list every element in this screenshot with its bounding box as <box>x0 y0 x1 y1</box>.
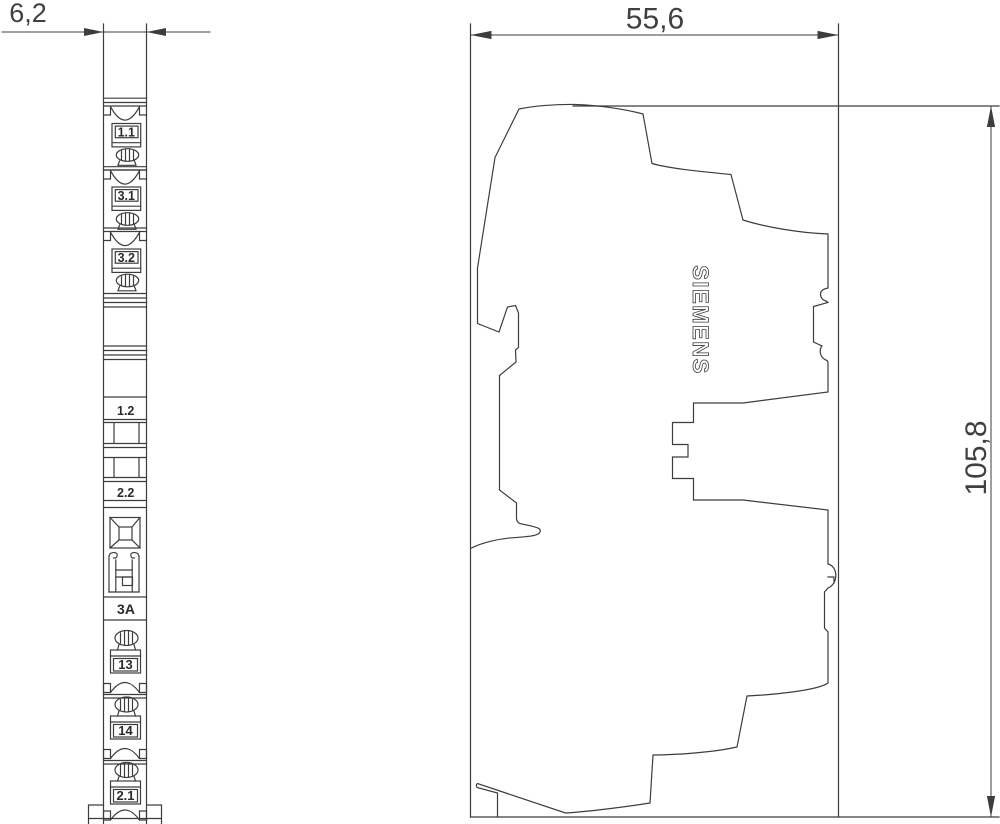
housing-outline <box>471 104 836 817</box>
arrow-icon <box>84 28 104 36</box>
screw-icon <box>116 213 138 230</box>
arrow-icon <box>471 31 492 39</box>
terminal-window-1 <box>104 423 147 444</box>
dim-value-side-width: 55,6 <box>626 3 684 36</box>
linework <box>2 24 999 824</box>
bottom-flange <box>89 805 162 824</box>
technical-dimension-drawing: 6,2 55,6 105,8 1.1 3.1 3.2 1.2 2.2 3A 13… <box>0 0 1000 824</box>
front-top-edge <box>104 98 147 102</box>
terminal-label-13: 13 <box>118 657 132 672</box>
terminal-window-2 <box>104 458 147 478</box>
screw-icon <box>115 763 138 778</box>
clamp-saddle-icon <box>104 232 147 246</box>
arrow-icon <box>147 28 167 36</box>
terminal-label-3-1: 3.1 <box>118 189 135 203</box>
front-view <box>89 24 162 824</box>
terminal-label-2-1: 2.1 <box>116 788 134 803</box>
clamp-saddle-icon <box>104 170 147 184</box>
brand-text: SIEMENS <box>688 265 713 375</box>
arrow-icon <box>818 31 839 39</box>
brand: SIEMENS <box>688 265 713 375</box>
labels: 6,2 55,6 105,8 1.1 3.1 3.2 1.2 2.2 3A 13… <box>9 0 993 803</box>
dimension-lines <box>2 32 991 817</box>
screw-icon <box>116 274 138 291</box>
terminal-label-1-2: 1.2 <box>117 404 134 418</box>
dim-value-front-width: 6,2 <box>9 0 47 28</box>
holder-bracket-icon <box>109 553 139 592</box>
boss-notch-detail <box>828 577 834 583</box>
test-button-icon <box>110 518 140 549</box>
screw-icon <box>115 631 138 646</box>
terminal-label-3-2: 3.2 <box>118 251 135 265</box>
side-view <box>471 24 1000 817</box>
terminal-label-1-1: 1.1 <box>118 126 135 140</box>
screw-icon <box>116 149 138 166</box>
drawing-svg: 6,2 55,6 105,8 1.1 3.1 3.2 1.2 2.2 3A 13… <box>0 0 1000 824</box>
guide-dome-icon <box>104 683 147 693</box>
rib-band-lower <box>104 346 147 360</box>
fuse-rating-label: 3A <box>117 601 135 617</box>
dimension-arrows <box>84 28 995 817</box>
terminal-label-2-2: 2.2 <box>117 486 134 500</box>
clamp-saddle-icon <box>104 106 147 120</box>
rib-band-upper <box>104 294 147 308</box>
guide-dome-icon <box>104 749 147 759</box>
dim-value-side-height: 105,8 <box>960 420 993 495</box>
arrow-icon <box>987 106 995 127</box>
terminal-label-14: 14 <box>118 723 133 738</box>
screw-icon <box>115 697 138 712</box>
arrow-icon <box>987 796 995 817</box>
